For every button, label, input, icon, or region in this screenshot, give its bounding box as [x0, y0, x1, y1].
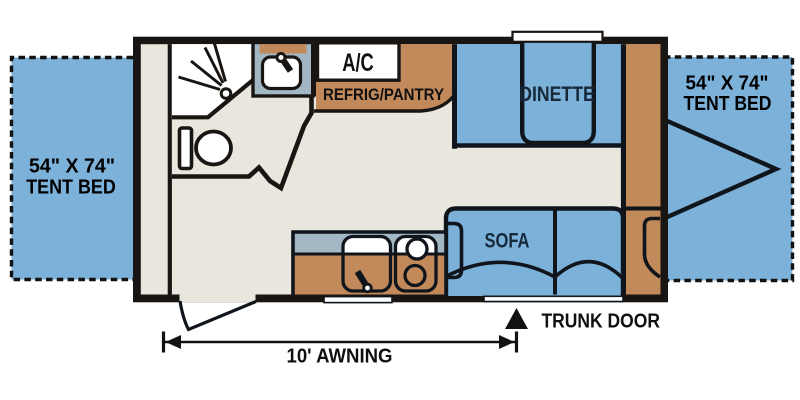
svg-text:TENT BED: TENT BED — [26, 176, 116, 199]
svg-text:TRUNK DOOR: TRUNK DOOR — [542, 311, 661, 333]
svg-text:DINETTE: DINETTE — [519, 83, 595, 106]
svg-text:REFRIG/PANTRY: REFRIG/PANTRY — [323, 85, 445, 104]
svg-text:10' AWNING: 10' AWNING — [287, 345, 393, 368]
svg-text:TENT BED: TENT BED — [684, 92, 772, 115]
svg-text:54" X 74": 54" X 74" — [29, 155, 115, 178]
svg-text:SOFA: SOFA — [485, 229, 530, 253]
svg-text:A/C: A/C — [342, 49, 374, 77]
